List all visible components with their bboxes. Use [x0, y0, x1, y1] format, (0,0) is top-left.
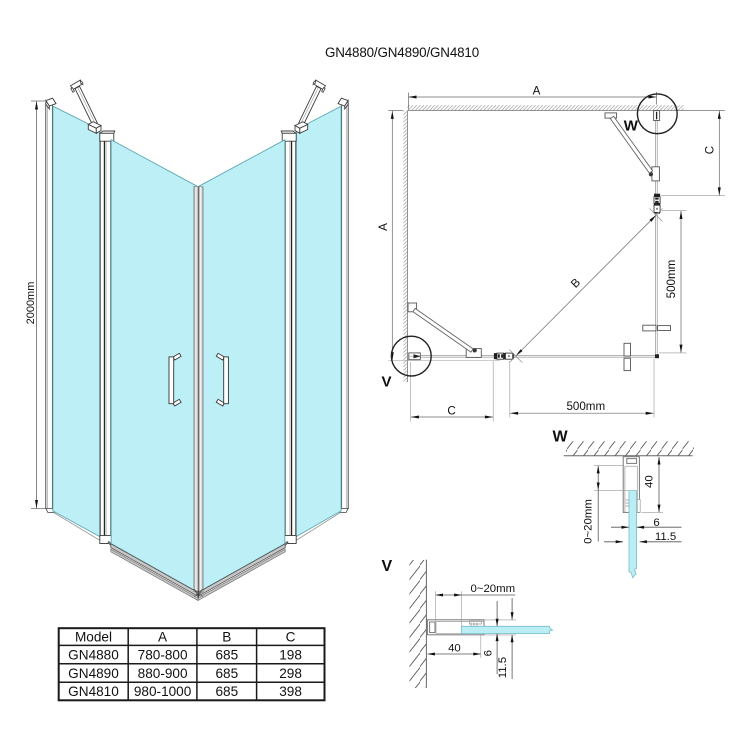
svg-text:B: B — [222, 630, 231, 645]
svg-text:40: 40 — [448, 643, 461, 655]
svg-text:V: V — [382, 374, 392, 391]
svg-text:980-1000: 980-1000 — [134, 684, 192, 699]
svg-text:6: 6 — [483, 650, 495, 656]
svg-text:685: 685 — [215, 666, 238, 681]
svg-text:198: 198 — [279, 647, 302, 662]
svg-text:685: 685 — [215, 647, 238, 662]
svg-text:40: 40 — [643, 475, 655, 488]
svg-text:11.5: 11.5 — [497, 657, 509, 678]
svg-text:685: 685 — [215, 684, 238, 699]
svg-text:A: A — [158, 630, 168, 645]
svg-text:500mm: 500mm — [566, 400, 605, 413]
svg-text:GN4890: GN4890 — [68, 666, 119, 681]
svg-text:880-900: 880-900 — [138, 666, 188, 681]
svg-text:GN4880/GN4890/GN4810: GN4880/GN4890/GN4810 — [325, 45, 479, 60]
svg-text:0~20mm: 0~20mm — [470, 583, 515, 595]
svg-text:B: B — [568, 276, 583, 291]
svg-text:C: C — [286, 630, 296, 645]
svg-text:C: C — [704, 146, 717, 154]
svg-text:780-800: 780-800 — [138, 647, 188, 662]
svg-text:W: W — [624, 118, 639, 135]
svg-text:V: V — [382, 558, 393, 575]
svg-text:C: C — [447, 405, 455, 418]
svg-text:6: 6 — [653, 517, 659, 529]
svg-text:GN4810: GN4810 — [68, 684, 119, 699]
svg-text:2000mm: 2000mm — [25, 282, 37, 325]
svg-text:0~20mm: 0~20mm — [583, 499, 595, 544]
svg-text:A: A — [377, 223, 390, 231]
svg-text:398: 398 — [279, 684, 302, 699]
svg-text:298: 298 — [279, 666, 302, 681]
svg-text:A: A — [533, 85, 541, 98]
svg-text:11.5: 11.5 — [655, 531, 676, 543]
svg-text:Model: Model — [75, 630, 112, 645]
svg-text:500mm: 500mm — [665, 260, 678, 299]
svg-text:GN4880: GN4880 — [68, 647, 119, 662]
